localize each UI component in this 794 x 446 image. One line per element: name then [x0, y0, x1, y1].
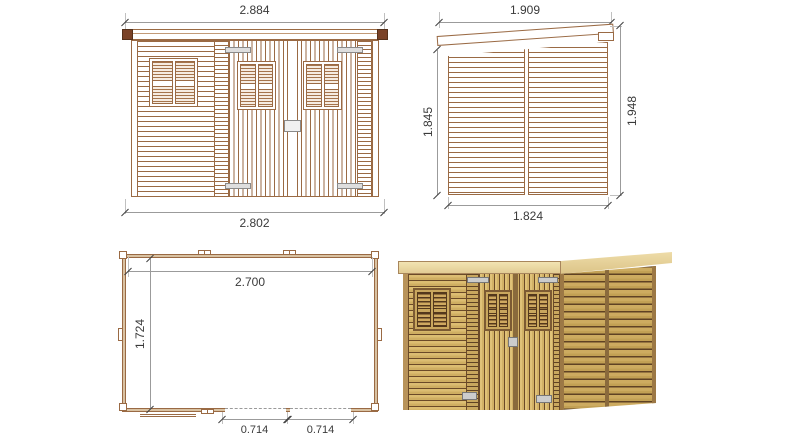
door-window-right	[303, 61, 342, 110]
wall-tab	[118, 328, 123, 341]
dimension-label: 1.724	[133, 314, 147, 354]
door-swing-dash-left	[225, 408, 286, 409]
wall-tab	[201, 409, 214, 414]
door-latch	[284, 120, 301, 132]
pent-roof	[437, 24, 614, 46]
extension-line	[372, 257, 373, 277]
window-left-3d	[413, 288, 451, 331]
door-latch	[508, 337, 518, 347]
corner-post	[119, 251, 127, 259]
dimension-line-height-right	[620, 26, 621, 195]
dimension-line-height-left	[437, 50, 438, 195]
door-center-stile	[287, 41, 298, 196]
door-frame-strip-left-3d	[466, 274, 479, 410]
window-sash	[528, 294, 537, 327]
dimension-label: 1.845	[421, 102, 435, 142]
window-left	[149, 58, 198, 107]
shed-technical-drawing: 2.884	[0, 0, 794, 446]
dimension-label: 2.700	[128, 275, 372, 289]
door-opening-left	[225, 406, 286, 412]
window-sash	[306, 64, 322, 107]
window-sash	[499, 294, 508, 327]
door-frame-strip-right-3d	[553, 274, 560, 410]
door-hinge-top-left	[467, 277, 489, 283]
window-sash	[417, 292, 431, 327]
door-hinge-bottom-right	[337, 183, 363, 189]
window-sash	[152, 61, 173, 104]
wall-center-board	[524, 42, 529, 195]
rendered-perspective-view	[395, 245, 685, 420]
tick-mark	[433, 46, 441, 54]
tick-mark	[433, 192, 441, 200]
door-window-left	[237, 61, 276, 110]
wall-tab	[377, 328, 382, 341]
extension-line	[128, 257, 129, 277]
dimension-label: 0.714	[222, 423, 287, 437]
roof-edge-line	[123, 33, 387, 34]
window-sash	[258, 64, 274, 107]
corner-trim-right	[372, 41, 379, 196]
door-window-right-3d	[524, 290, 552, 331]
door-hinge-bottom-left	[225, 183, 251, 189]
roof-fascia-front	[398, 261, 561, 274]
dimension-label: 0.714	[288, 423, 353, 437]
door-handle-left	[462, 392, 477, 400]
door-swing-dash-right	[290, 408, 351, 409]
dimension-line-door-left	[222, 419, 287, 420]
corner-post	[119, 403, 127, 411]
wall-center-board-3d	[605, 266, 609, 410]
window-sash	[240, 64, 256, 107]
side-wall	[448, 42, 608, 195]
side-wall-3d	[560, 266, 656, 410]
door-window-left-3d	[484, 290, 512, 331]
front-wall	[131, 40, 379, 197]
floor-plan-view: 2.700 1.724 0.714 0.714	[0, 240, 400, 446]
door-opening-right	[290, 406, 351, 412]
dimension-line-inner-depth	[150, 259, 151, 409]
front-elevation-view: 2.884	[0, 0, 400, 240]
door-hinge-top-left	[225, 47, 251, 53]
dimension-label: 2.884	[125, 3, 384, 17]
dimension-line-width-top	[125, 22, 384, 23]
door-hinge-top-right	[538, 277, 558, 283]
door-hinge-top-right	[337, 47, 363, 53]
window-sash	[488, 294, 497, 327]
corner-board-far	[652, 266, 656, 410]
window-marker	[140, 414, 196, 417]
window-sash	[433, 292, 447, 327]
dimension-label: 1.909	[439, 3, 611, 17]
front-wall-3d	[403, 274, 560, 410]
roof-cap-right	[377, 29, 388, 40]
roof-band	[122, 29, 388, 40]
wall-tab	[198, 250, 211, 255]
wall-tab	[283, 250, 296, 255]
dimension-label: 2.802	[125, 216, 384, 230]
window-sash	[539, 294, 548, 327]
door-frame-strip-left	[214, 41, 229, 196]
roof-cap-left	[122, 29, 133, 40]
corner-board-near	[560, 266, 564, 410]
roof-fascia-step	[598, 32, 614, 41]
dimension-label: 1.948	[625, 91, 639, 131]
side-elevation-view: 1.909 1.845 1.948 1.824	[400, 0, 680, 240]
dimension-line-depth-bottom	[448, 205, 608, 206]
door-frame-strip-right	[357, 41, 372, 196]
dimension-line-width-bottom	[125, 212, 384, 213]
window-sash	[175, 61, 196, 104]
dimension-line-door-right	[288, 419, 353, 420]
corner-post	[371, 403, 379, 411]
dimension-line-inner-width	[128, 271, 372, 272]
dimension-label: 1.824	[448, 209, 608, 223]
dimension-line-roof	[439, 22, 611, 23]
door-handle-right	[536, 395, 552, 403]
window-sash	[324, 64, 340, 107]
